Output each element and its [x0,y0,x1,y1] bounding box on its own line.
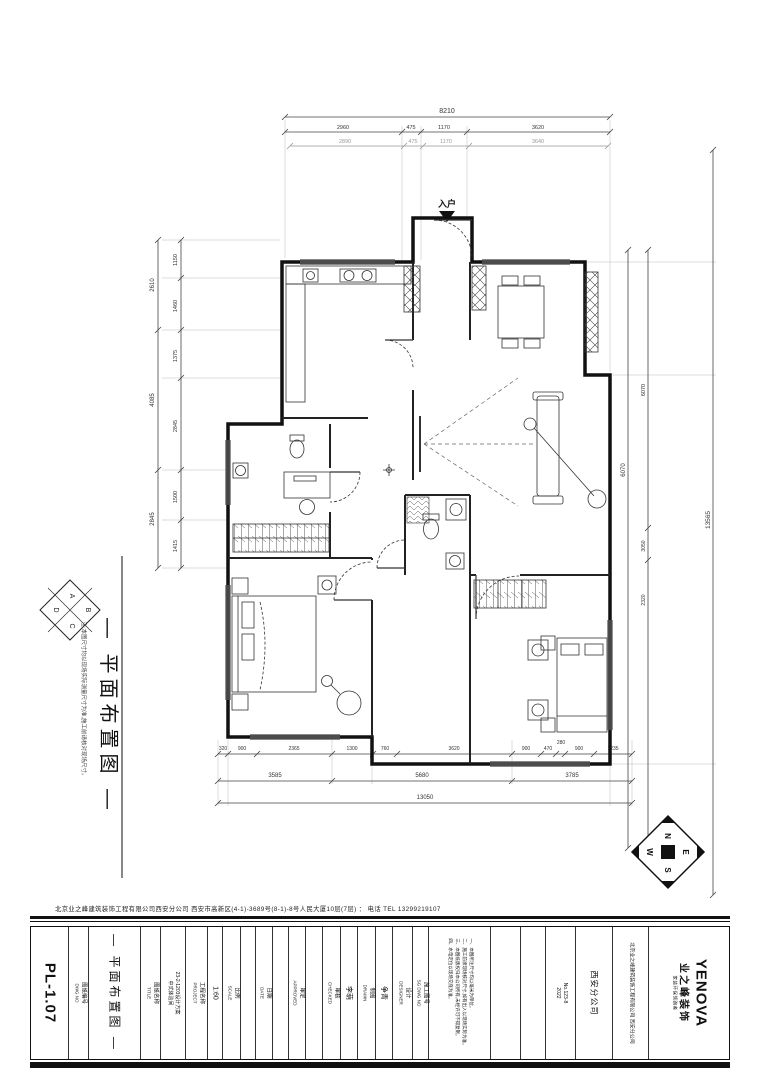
bed2 [232,596,316,692]
tb-label-checked: 审核CHECKED [323,927,341,1059]
tb-sheet-number: PL-1.07 [31,927,69,1059]
dim-top-seg-3: 3620 [532,125,544,131]
bedroom2-door-arc [334,562,372,600]
yenova-logo: YENOVA 业之峰装饰 家装环保领跑者 [672,959,709,1027]
tb-company: 北京业之峰建筑装饰工程有限公司 西安分公司 [613,927,649,1059]
dim-left-inner-1: 1460 [173,300,179,312]
dim-bot-total: 13050 [417,795,434,801]
dim-bot-sub-1: 5680 [415,773,429,779]
side-title: — 平面布置图 — [97,618,120,814]
dim-top2-seg-3: 3640 [532,139,544,145]
dim-bot-seg-9: 900 [575,746,584,752]
tb-designer-value: 争青 [376,927,393,1059]
kitchen-sink [303,269,318,282]
bottom-bar [30,1062,730,1068]
bath-door-arc [377,540,405,568]
nightstand [232,694,248,710]
tb-blank-1 [491,927,521,1059]
compass-s: S [663,867,672,873]
dim-bot-seg-4: 760 [381,746,390,752]
dining-chair [524,339,540,348]
tb-approved-value [273,927,289,1059]
dim-left-inner-0: 1150 [173,254,179,266]
thin-rule [30,921,730,922]
tb-label-drawn: 制图DRAWN [358,927,376,1059]
dining-chair [502,339,518,348]
dim-left-inner-5: 1415 [173,540,179,552]
dim-left-outer-0: 2610 [150,278,156,292]
dim-right-inner2-0: 6070 [641,384,647,396]
dim-bot-seg-2: 2365 [288,746,299,752]
tb-drawing-title: — 平面布置图 — [89,927,141,1059]
dining-chair [502,276,518,285]
dim-bot-seg-0: 320 [219,746,228,752]
compass: N E S W [632,816,704,888]
dim-top2-seg-0: 2890 [339,139,351,145]
tb-label-date: 日期DATE [256,927,273,1059]
tb-drawn-value: 李萌 [341,927,358,1059]
shoe-cabinet [404,266,420,312]
dim-top2-seg-2: 1170 [440,139,452,145]
dim-right-inner2-2: 2320 [641,594,647,605]
dim-top-total: 8210 [439,108,455,115]
side-note: 注:本图尺寸均以现场实际测量尺寸为准,施工前请核对现场尺寸。 [80,621,88,778]
side-panel: A B C D — 平面布置图 — 注:本图尺寸均以现场实际测量尺寸为准,施工前… [40,556,122,878]
tv-view-rays [424,378,536,506]
entry-door-arc [434,220,472,258]
dim-bot-seg-1: 900 [238,746,247,752]
dim-right [625,147,716,898]
ac-unit-icon [528,700,548,720]
dim-left [155,237,184,571]
master-wardrobe [474,580,546,608]
dim-bot-sub-2: 3785 [565,773,579,779]
compass-e: E [681,849,690,855]
wall-column-block [585,272,598,352]
tb-logo: YENOVA 业之峰装饰 家装环保领跑者 [649,927,731,1059]
dim-top-seg-0: 2960 [337,125,349,131]
dim-right-inner-0: 6070 [621,463,627,477]
dining-chair [524,276,540,285]
index-letter-d: D [52,607,59,612]
tb-notes: 一、本图所注尺寸均以毫米为单位。 二、施工前须现场核对尺寸,如有出入以现场实际为… [429,927,491,1059]
tb-checked-value [306,927,323,1059]
drawing-sheet: 8210 2960 475 1170 3620 2890 475 1170 36… [0,0,760,1080]
dim-left-inner-2: 1375 [173,350,179,362]
dining-table [498,286,544,338]
dim-bot-seg-6: 900 [522,746,531,752]
ceiling-light-icon [383,464,395,476]
index-letter-c: C [68,623,75,628]
dim-bot-seg-8: 280 [557,740,566,746]
tb-project-name: 23-2-1203设计方案中式体验间 [161,927,186,1059]
stove [340,269,376,282]
hatch-blocks [233,266,598,608]
dim-bot-sub-0: 3585 [268,773,282,779]
nightstand [232,578,248,594]
dim-top-seg-1: 475 [406,125,415,131]
hall-door-arc [385,340,413,368]
tb-label-designer: 设计DESIGNER [393,927,413,1059]
tb-label-project: 工程名称PROJECT [186,927,208,1059]
shower-floor [407,497,429,523]
toilet2 [290,440,304,458]
dim-right-outer: 13565 [705,511,712,529]
tb-label-job-no: 施工图号SG DWG NO [413,927,429,1059]
tb-label-approved: 审定APPROVED [289,927,306,1059]
dim-left-inner-3: 2845 [173,420,179,432]
dim-bot-seg-3: 1300 [346,746,357,752]
tb-label-dwg-no: 图纸编号DWG NO [69,927,89,1059]
tb-label-title: 图纸名称TITLE [141,927,161,1059]
address-line: 北京业之峰建筑装饰工程有限公司西安分公司 西安市高新区(4-1)-3689号(8… [55,904,441,913]
sofa [537,396,559,496]
entry-cabinet [472,266,486,310]
entry-label: 入户 [437,198,456,209]
monitor [294,476,316,481]
plant [337,691,361,715]
dim-left-inner-4: 1500 [173,491,179,503]
dim-bot-seg-7: 470 [544,746,553,752]
tb-label-scale: 比例SCALE [223,927,241,1059]
dim-top-seg-2: 1170 [438,125,450,131]
toilet [424,519,439,539]
tb-scale-value: 1:60 [208,927,223,1059]
study-door-arc [330,472,360,502]
dim-right-inner2-1: 3050 [641,540,647,551]
kitchen-counter-side [286,284,305,402]
compass-n: N [663,833,672,839]
title-block: PL-1.07 图纸编号DWG NO — 平面布置图 — 图纸名称TITLE 2… [30,926,730,1060]
dim-bot-seg-5: 3620 [448,746,459,752]
dim-top2-seg-1: 475 [408,139,417,145]
desk-chair [300,500,315,515]
index-letter-a: A [68,594,75,599]
heavy-rule-top [30,916,730,919]
ac-unit-icon [318,576,336,594]
compass-w: W [645,848,654,856]
tb-branch: 西安分公司 [576,927,613,1059]
tb-date-value [241,927,256,1059]
master-bed [557,638,607,732]
dim-left-outer-1: 4085 [150,393,156,407]
tb-blank-2 [521,927,546,1059]
washing-machine [446,499,466,520]
index-letter-b: B [84,608,91,613]
floor-plan-svg: 8210 2960 475 1170 3620 2890 475 1170 36… [0,0,760,920]
tb-doc-no: No.123-82022 [546,927,576,1059]
dim-left-outer-2: 2845 [150,512,156,526]
